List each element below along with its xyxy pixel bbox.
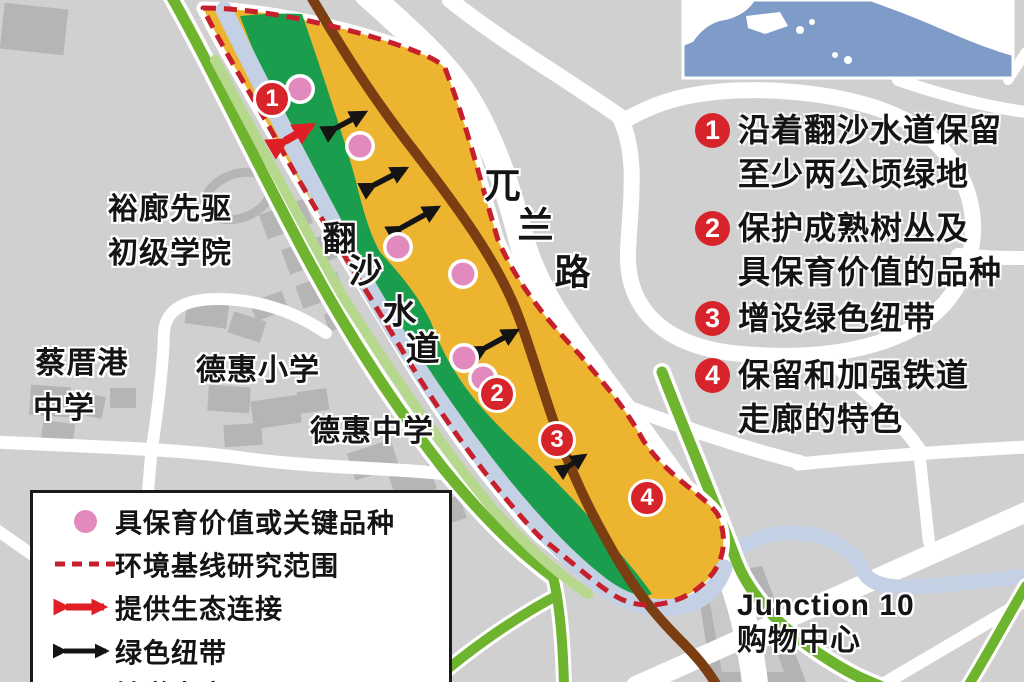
legend-label-boundary: 环境基线研究范围: [115, 545, 339, 584]
annotation-text-1: 沿着翻沙水道保留 至少两公顷绿地: [738, 108, 1002, 196]
map-graphic: 1 2 3 4 裕廊先驱 初级学院 蔡厝港 中学 德惠小学 德惠中学 兀 兰 路…: [0, 0, 1024, 682]
annotation-badge-4: 4: [695, 358, 730, 393]
label-canal-char3: 水: [383, 295, 418, 332]
label-junction10: Junction 10 购物中心: [737, 588, 915, 658]
annotation-text-4: 保留和加强铁道 走廊的特色: [738, 353, 969, 441]
dashed-line-icon: [45, 547, 125, 581]
annotation-4-line2: 走廊的特色: [738, 397, 969, 441]
label-canal-char4: 道: [406, 332, 441, 369]
annotation-3-line1: 增设绿色纽带: [738, 296, 936, 340]
label-cck-secondary-line2: 中学: [33, 393, 95, 425]
map-marker-3: 3: [538, 421, 576, 459]
species-dot-icon: [45, 504, 125, 538]
label-junction10-line2: 购物中心: [737, 623, 915, 658]
legend-row-species: 具保育价值或关键品种: [33, 504, 449, 538]
annotation-badge-1: 1: [695, 113, 730, 148]
label-junction10-line1: Junction 10: [737, 588, 915, 623]
legend-label-rail-corridor: 铁道走廊: [115, 674, 227, 682]
legend-row-boundary: 环境基线研究范围: [33, 547, 449, 581]
label-junior-college-line1: 裕廊先驱: [108, 194, 232, 226]
red-double-arrow-icon: [45, 590, 125, 624]
annotation-2-line2: 具保育价值的品种: [738, 250, 1002, 294]
legend-row-green-tie: 绿色纽带: [33, 634, 449, 668]
label-dehui-secondary: 德惠中学: [310, 416, 434, 448]
legend-label-eco-connection: 提供生态连接: [115, 588, 283, 627]
map-marker-2: 2: [478, 375, 516, 413]
annotation-4-line1: 保留和加强铁道: [738, 353, 969, 397]
label-woodlands-road-char2: 兰: [517, 207, 554, 246]
species-dot: [383, 232, 413, 262]
label-canal-char2: 沙: [349, 254, 384, 291]
map-marker-1: 1: [253, 80, 291, 118]
annotation-1-line2: 至少两公顷绿地: [738, 152, 1002, 196]
species-dot: [448, 259, 478, 289]
label-dehui-primary: 德惠小学: [196, 355, 320, 387]
legend-row-rail-corridor: 铁道走廊: [33, 676, 449, 682]
label-junior-college-line2: 初级学院: [108, 238, 232, 270]
inset-map: [683, 0, 1013, 78]
legend-label-green-tie: 绿色纽带: [115, 632, 227, 671]
black-double-arrow-icon: [45, 634, 125, 668]
annotation-text-3: 增设绿色纽带: [738, 296, 936, 340]
species-dot: [345, 131, 375, 161]
annotation-badge-3: 3: [695, 301, 730, 336]
label-cck-secondary-line1: 蔡厝港: [36, 348, 129, 380]
annotation-2-line1: 保护成熟树丛及: [738, 206, 1002, 250]
legend-label-species: 具保育价值或关键品种: [115, 502, 395, 541]
annotation-1-line1: 沿着翻沙水道保留: [738, 108, 1002, 152]
legend-box: 具保育价值或关键品种 环境基线研究范围 提供生态连接: [30, 490, 452, 682]
annotation-badge-2: 2: [695, 211, 730, 246]
legend-row-eco-connection: 提供生态连接: [33, 590, 449, 624]
label-woodlands-road-char1: 兀: [484, 167, 521, 206]
annotation-text-2: 保护成熟树丛及 具保育价值的品种: [738, 206, 1002, 294]
map-marker-4: 4: [628, 479, 666, 517]
label-woodlands-road-char3: 路: [554, 254, 591, 293]
